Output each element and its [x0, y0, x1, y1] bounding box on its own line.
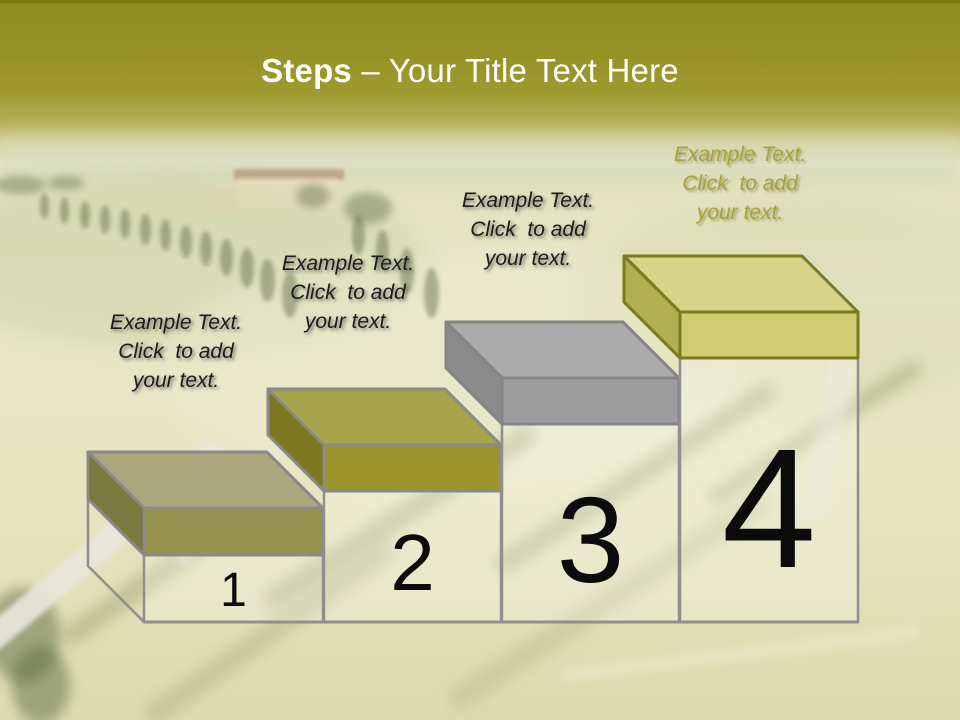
step-4-label-line1: Example Text. [630, 140, 850, 169]
step-3-label-line2: Click to add [418, 215, 638, 244]
step-4-number: 4 [680, 424, 858, 594]
step-4-label-line3: your text. [630, 198, 850, 227]
step-2-number: 2 [324, 523, 501, 603]
step-1-label-line3: your text. [66, 366, 286, 395]
step-3-label-line1: Example Text. [418, 186, 638, 215]
step-4-slab-front [680, 312, 858, 358]
step-3-slab-front [502, 378, 679, 424]
step-1-label-line2: Click to add [66, 337, 286, 366]
step-1-number: 1 [144, 567, 323, 615]
step-4-label-line2: Click to add [630, 169, 850, 198]
step-1-slab-front [144, 508, 323, 555]
slide: Steps – Your Title Text Here [0, 0, 960, 720]
step-3-label-line3: your text. [418, 244, 638, 273]
step-2-label-line3: your text. [238, 307, 458, 336]
step-2-label-line2: Click to add [238, 278, 458, 307]
step-2-slab-front [324, 445, 501, 491]
step-3-label[interactable]: Example Text. Click to add your text. [418, 186, 638, 273]
step-4-label[interactable]: Example Text. Click to add your text. [630, 140, 850, 227]
step-3-number: 3 [502, 479, 679, 601]
